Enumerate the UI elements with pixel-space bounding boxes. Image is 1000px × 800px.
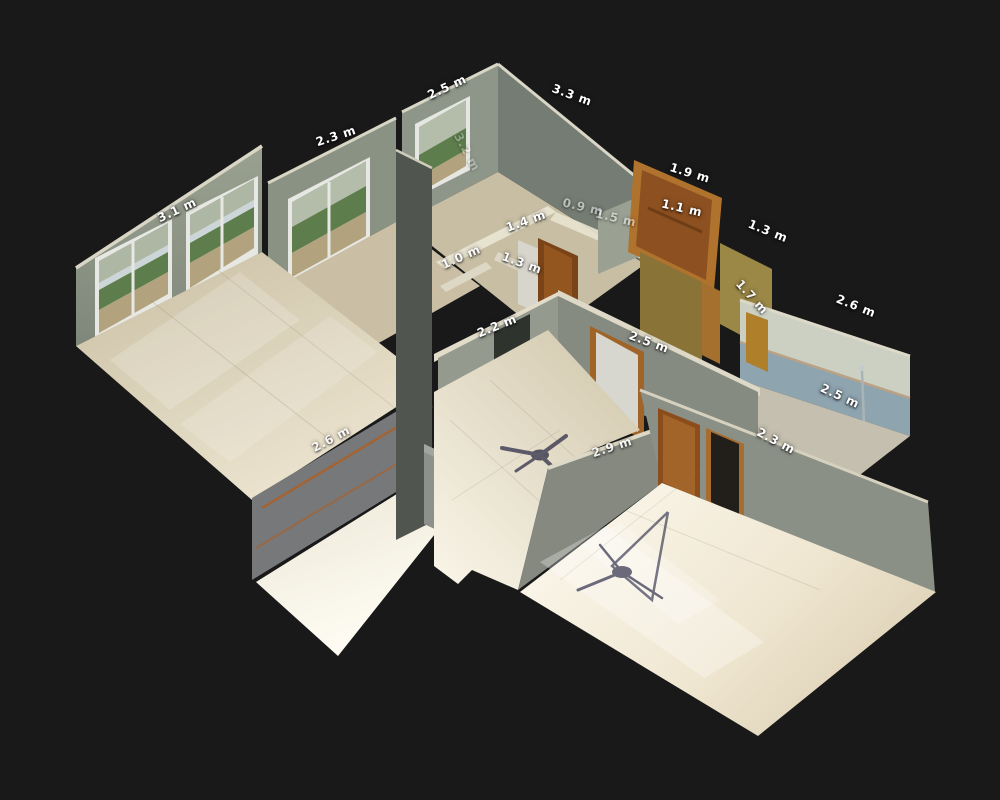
bathroom-door xyxy=(746,312,768,372)
doorway-opening xyxy=(711,432,739,516)
closet-door-edge xyxy=(702,282,720,364)
dollhouse-viewport[interactable]: 3.1 m2.3 m2.5 m3.3 m1.9 m1.1 m1.3 m1.4 m… xyxy=(0,0,1000,800)
shower-head xyxy=(859,365,865,371)
floorplan-3d-scene[interactable] xyxy=(0,0,1000,800)
